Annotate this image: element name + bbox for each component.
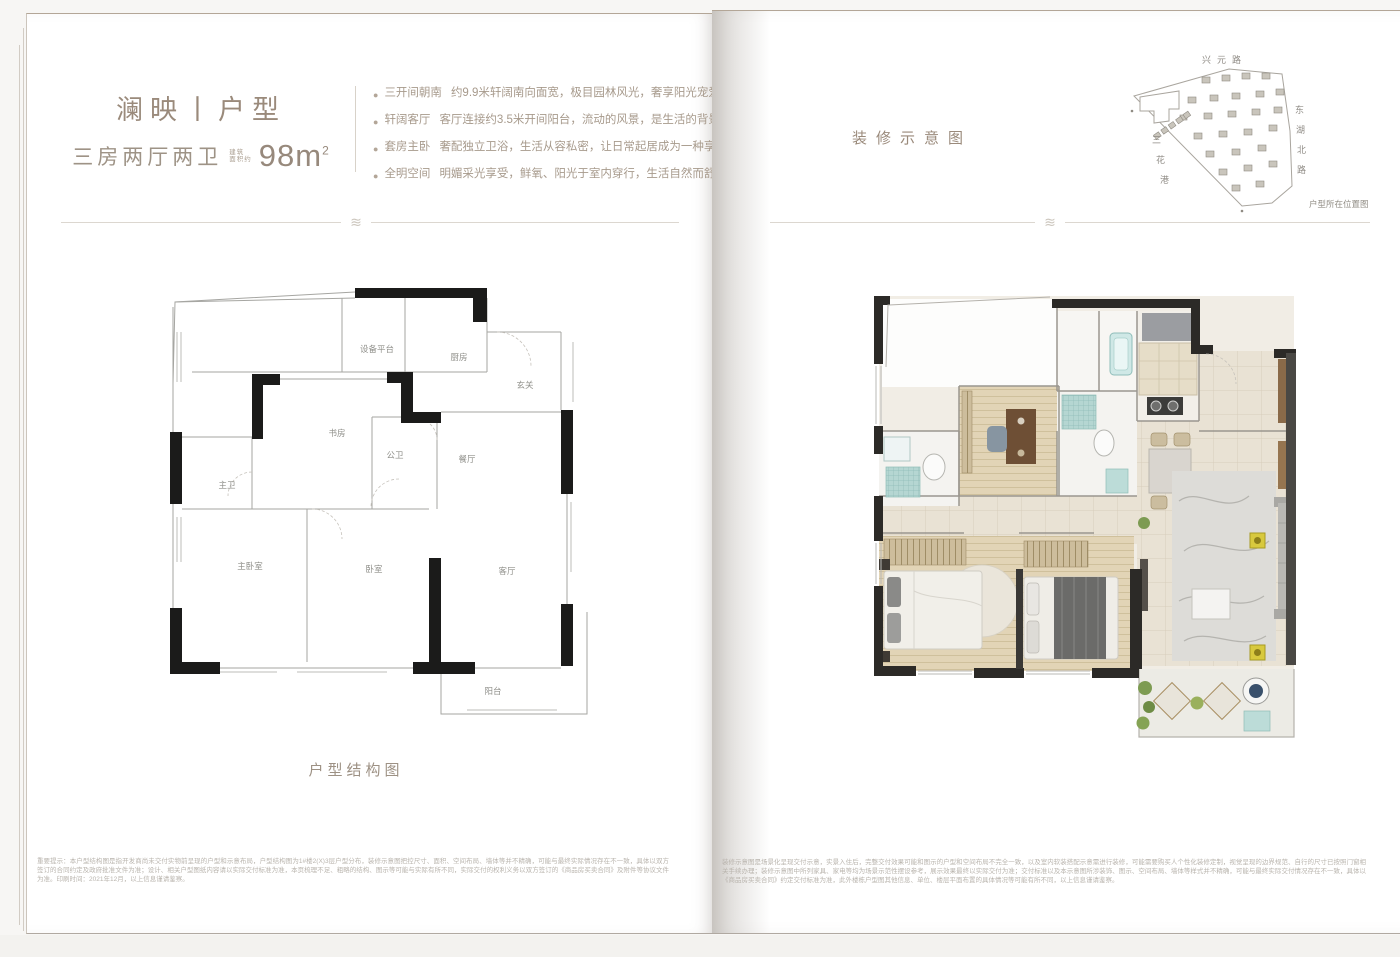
area-note-bottom: 面积约: [229, 156, 252, 163]
room-label-master-bedroom: 主卧室: [237, 561, 263, 571]
map-road-right-char: 湖: [1296, 125, 1305, 135]
page-stack-edge-line: [23, 28, 24, 931]
room-label-foyer: 玄关: [516, 380, 534, 390]
right-page: 装修示意图 兴元路 东: [712, 10, 1400, 934]
bullet-icon: ●: [373, 142, 378, 156]
bullet-icon: ●: [373, 88, 378, 102]
area-superscript: 2: [322, 144, 330, 158]
room-label-dining: 餐厅: [458, 454, 476, 464]
map-road-right-char: 东: [1295, 104, 1304, 115]
page-title: 装修示意图: [852, 127, 972, 148]
book-gutter-shadow: [712, 11, 770, 933]
furnished-floorplan: [854, 271, 1314, 749]
bullet-icon: ●: [373, 115, 378, 129]
bullet-icon: ●: [373, 169, 378, 183]
map-road-top-label: 兴元路: [1202, 54, 1247, 65]
area-value: 98m2: [259, 138, 330, 174]
room-label-living: 客厅: [498, 566, 516, 576]
area-note: 建筑 面积约: [229, 149, 252, 163]
disclaimer-text: 重要提示：本户型结构图是指开发商尚未交付实物前呈现的户型和示意布局，户型结构图为…: [37, 857, 669, 884]
plan-caption: 户型结构图: [27, 759, 685, 780]
map-caption: 户型所在位置图: [1309, 199, 1369, 209]
map-road-left-char: 花: [1156, 154, 1165, 165]
room-label-bedroom: 卧室: [365, 564, 383, 574]
brochure-spread-photo: 澜映丨户型 三房两厅两卫 建筑 面积约 98m2 ● 三开间朝南 约9.9米轩阔…: [0, 0, 1400, 957]
list-item: ● 全明空间 明媚采光享受，鲜氧、阳光于室内穿行，生活自然而舒畅: [373, 167, 695, 183]
site-map: 兴元路 东 湖 北 路 三 花 港 户型所在位置图: [1124, 51, 1396, 219]
page-stack-edge-line: [19, 45, 20, 925]
wave-ornament-icon: ≋: [1035, 212, 1065, 232]
layout-subtitle: 三房两厅两卫 建筑 面积约 98m2: [27, 138, 375, 174]
list-item: ● 三开间朝南 约9.9米轩阔南向面宽，极目园林风光，奢享阳光宠爱: [373, 86, 695, 102]
room-count-text: 三房两厅两卫: [72, 141, 222, 171]
wave-ornament-icon: ≋: [341, 212, 371, 232]
map-road-right-char: 北: [1297, 145, 1306, 155]
room-label-kitchen: 厨房: [450, 352, 467, 362]
list-item: ● 轩阔客厅 客厅连接约3.5米开间阳台，流动的风景，是生活的背景: [373, 113, 695, 129]
room-label-balcony: 阳台: [484, 686, 501, 696]
room-label-guest-bath: 公卫: [386, 450, 404, 460]
left-page: 澜映丨户型 三房两厅两卫 建筑 面积约 98m2 ● 三开间朝南 约9.9米轩阔…: [26, 13, 713, 934]
map-road-left-char: 三: [1152, 135, 1161, 145]
floorplan-line-drawing: 设备平台 厨房 玄关 书房 公卫 餐厅 主卫 主卧室 卧室 客厅 阳台: [137, 272, 607, 727]
area-note-top: 建筑: [229, 149, 252, 156]
page-title: 澜映丨户型: [27, 88, 375, 127]
title-bullets-divider: [355, 86, 356, 172]
room-label-study: 书房: [328, 428, 345, 438]
photo-bottom-band: [0, 935, 1400, 957]
list-item: ● 套房主卧 奢配独立卫浴，生活从容私密，让日常起居成为一种享受: [373, 140, 695, 156]
room-label-master-bath: 主卫: [218, 480, 236, 490]
selling-points-list: ● 三开间朝南 约9.9米轩阔南向面宽，极目园林风光，奢享阳光宠爱 ● 轩阔客厅…: [373, 86, 695, 183]
map-road-right-char: 路: [1297, 164, 1306, 175]
map-road-left-char: 港: [1160, 174, 1169, 185]
room-label-equipment-platform: 设备平台: [360, 344, 394, 354]
section-divider: [770, 222, 1370, 223]
disclaimer-text: 装修示意图是场景化呈现交付示意，实景入住后，完整交付效果可能和图示的户型和空间布…: [722, 858, 1366, 885]
